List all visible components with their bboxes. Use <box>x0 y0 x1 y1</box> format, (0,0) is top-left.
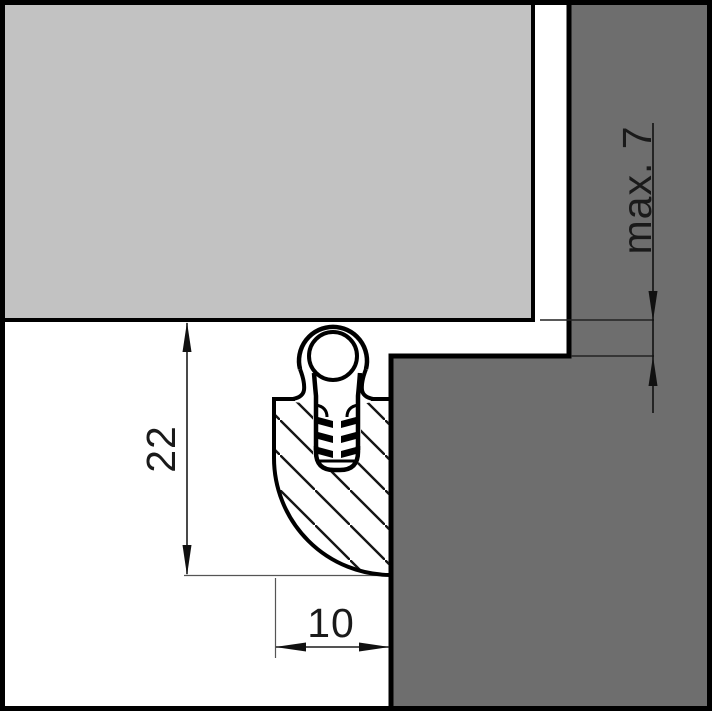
diagram-canvas: 22 10 max. 7 <box>0 0 712 711</box>
cross-section-diagram: 22 10 max. 7 <box>0 0 712 711</box>
dimension-22-label: 22 <box>138 425 184 473</box>
dimension-max7-label: max. 7 <box>614 125 660 254</box>
dimension-10-label: 10 <box>307 600 355 646</box>
door-panel-region <box>2 2 533 320</box>
